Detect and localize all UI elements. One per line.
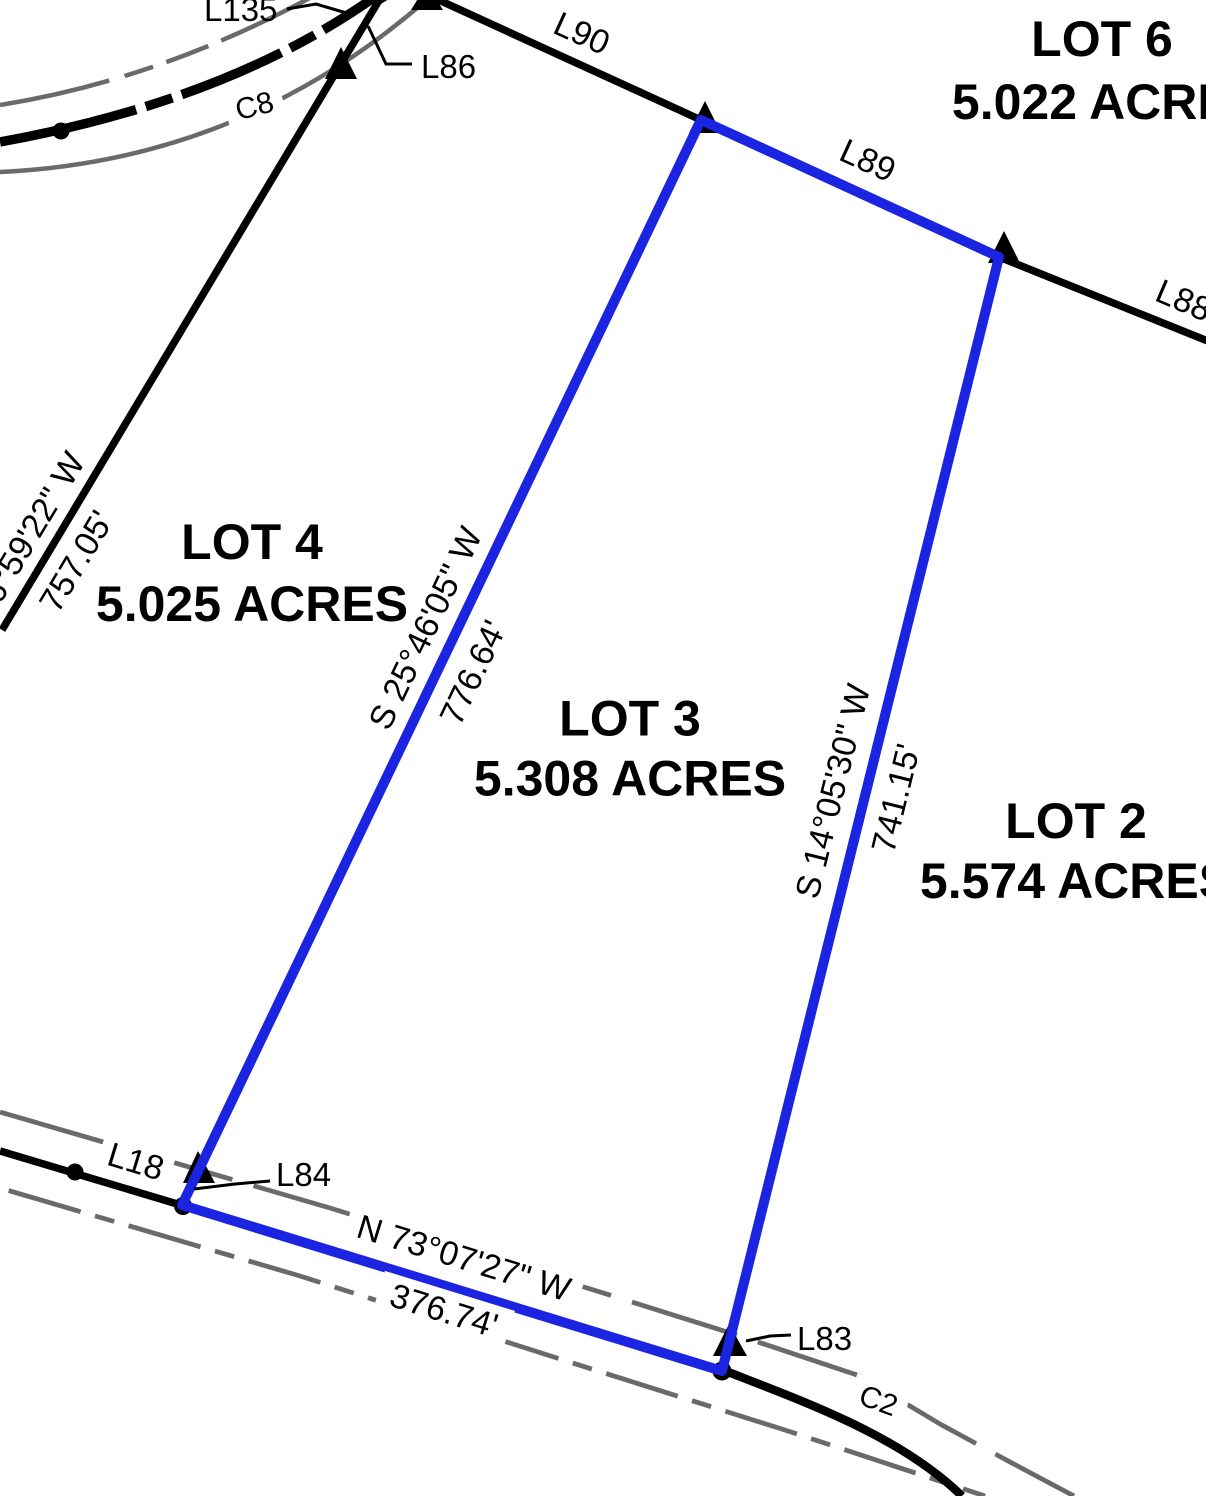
- svg-text:5.022 ACRES: 5.022 ACRES: [952, 74, 1206, 130]
- svg-text:LOT 2: LOT 2: [1005, 793, 1147, 849]
- svg-text:5.574 ACRES: 5.574 ACRES: [920, 853, 1206, 909]
- svg-text:5.025 ACRES: 5.025 ACRES: [96, 576, 408, 632]
- svg-text:LOT 3: LOT 3: [559, 691, 701, 747]
- svg-text:L83: L83: [797, 1320, 852, 1357]
- svg-text:L86: L86: [421, 48, 476, 85]
- svg-text:LOT 4: LOT 4: [181, 514, 323, 570]
- svg-text:L135: L135: [204, 0, 277, 28]
- svg-text:LOT 6: LOT 6: [1031, 11, 1173, 67]
- svg-text:L84: L84: [276, 1156, 331, 1193]
- svg-text:5.308 ACRES: 5.308 ACRES: [474, 751, 786, 807]
